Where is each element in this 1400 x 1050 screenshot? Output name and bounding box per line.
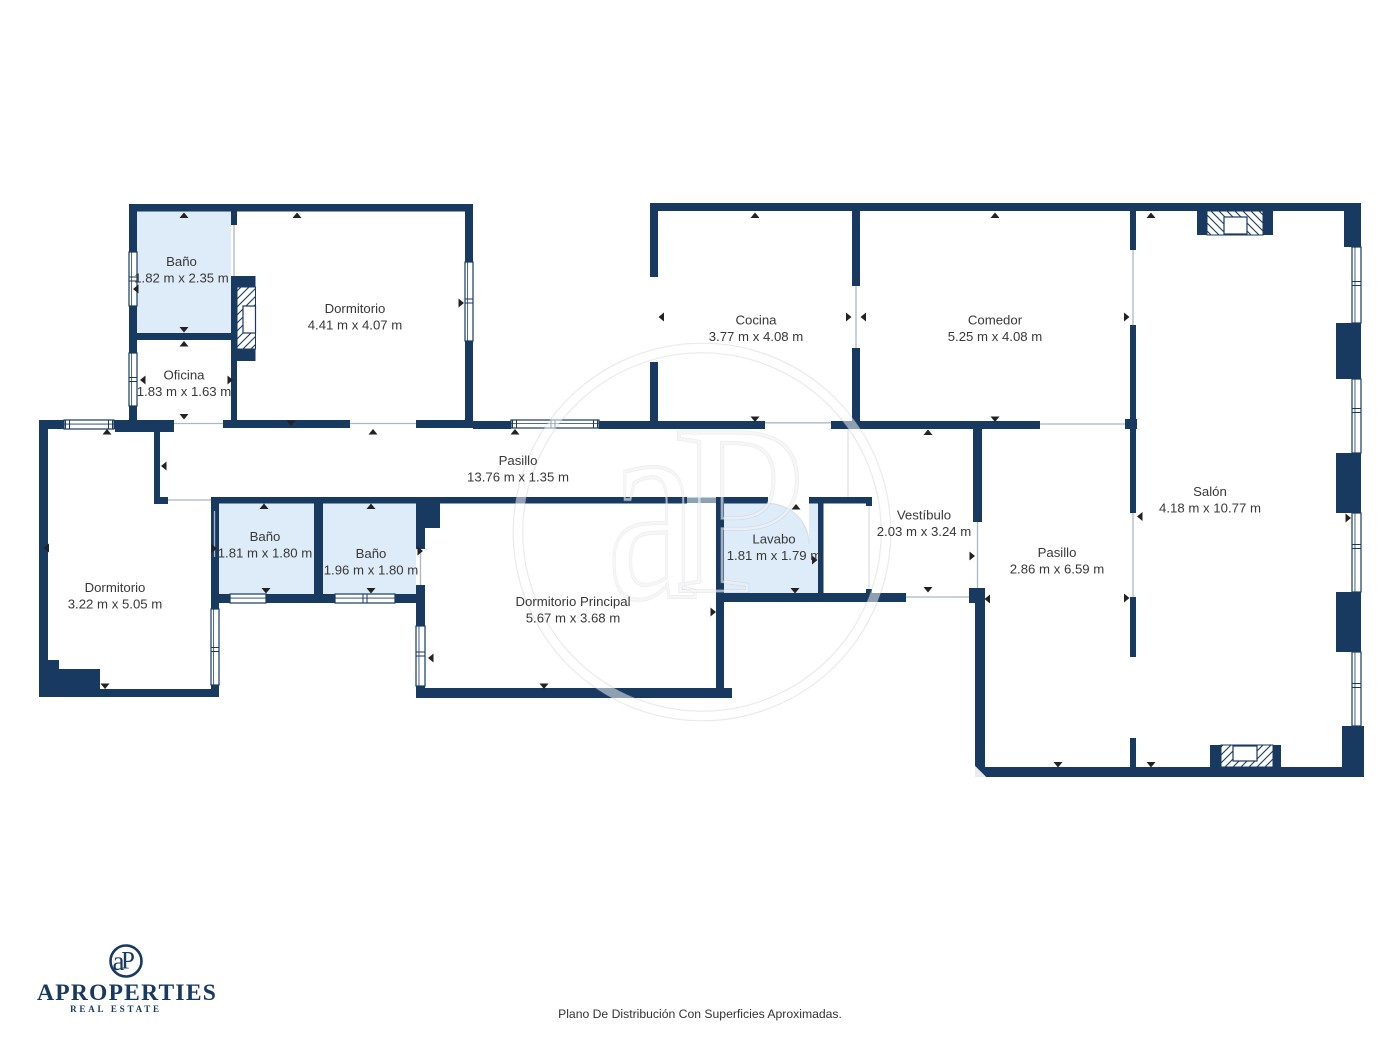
svg-text:Salón: Salón <box>1193 484 1227 499</box>
svg-text:1.82 m x 2.35 m: 1.82 m x 2.35 m <box>134 271 229 286</box>
svg-text:4.18 m x 10.77 m: 4.18 m x 10.77 m <box>1159 501 1261 516</box>
svg-text:5.67 m x 3.68 m: 5.67 m x 3.68 m <box>526 611 621 626</box>
svg-text:Baño: Baño <box>166 254 197 269</box>
svg-text:Comedor: Comedor <box>968 313 1023 328</box>
svg-text:Dormitorio: Dormitorio <box>85 580 146 595</box>
svg-text:Baño: Baño <box>356 546 387 561</box>
svg-text:1.81 m x 1.80 m: 1.81 m x 1.80 m <box>218 546 313 561</box>
svg-text:Vestíbulo: Vestíbulo <box>897 508 951 523</box>
svg-text:2.03 m x 3.24 m: 2.03 m x 3.24 m <box>877 524 972 539</box>
svg-text:Dormitorio Principal: Dormitorio Principal <box>515 594 630 609</box>
svg-text:P: P <box>121 948 135 975</box>
svg-text:2.86 m x 6.59 m: 2.86 m x 6.59 m <box>1010 562 1105 577</box>
svg-text:Dormitorio: Dormitorio <box>325 301 386 316</box>
svg-text:13.76 m x 1.35 m: 13.76 m x 1.35 m <box>467 470 569 485</box>
svg-text:1.81 m x 1.79 m: 1.81 m x 1.79 m <box>727 548 822 563</box>
svg-text:P: P <box>672 376 807 644</box>
svg-text:APROPERTIES: APROPERTIES <box>37 980 217 1006</box>
svg-text:1.83 m x 1.63 m: 1.83 m x 1.63 m <box>137 384 232 399</box>
svg-text:Cocina: Cocina <box>735 313 777 328</box>
svg-text:3.22 m x 5.05 m: 3.22 m x 5.05 m <box>68 597 163 612</box>
svg-text:5.25 m x 4.08 m: 5.25 m x 4.08 m <box>948 329 1043 344</box>
svg-text:Plano De Distribución Con Supe: Plano De Distribución Con Superficies Ap… <box>558 1007 842 1021</box>
svg-text:1.96 m x 1.80 m: 1.96 m x 1.80 m <box>324 563 419 578</box>
svg-text:Pasillo: Pasillo <box>499 453 538 468</box>
svg-text:Lavabo: Lavabo <box>752 532 795 547</box>
svg-text:3.77 m x 4.08 m: 3.77 m x 4.08 m <box>709 329 804 344</box>
svg-text:Oficina: Oficina <box>163 368 205 383</box>
svg-text:Baño: Baño <box>250 529 281 544</box>
svg-text:4.41 m x 4.07 m: 4.41 m x 4.07 m <box>308 318 403 333</box>
svg-text:Pasillo: Pasillo <box>1038 545 1077 560</box>
svg-text:REAL ESTATE: REAL ESTATE <box>70 1004 162 1014</box>
